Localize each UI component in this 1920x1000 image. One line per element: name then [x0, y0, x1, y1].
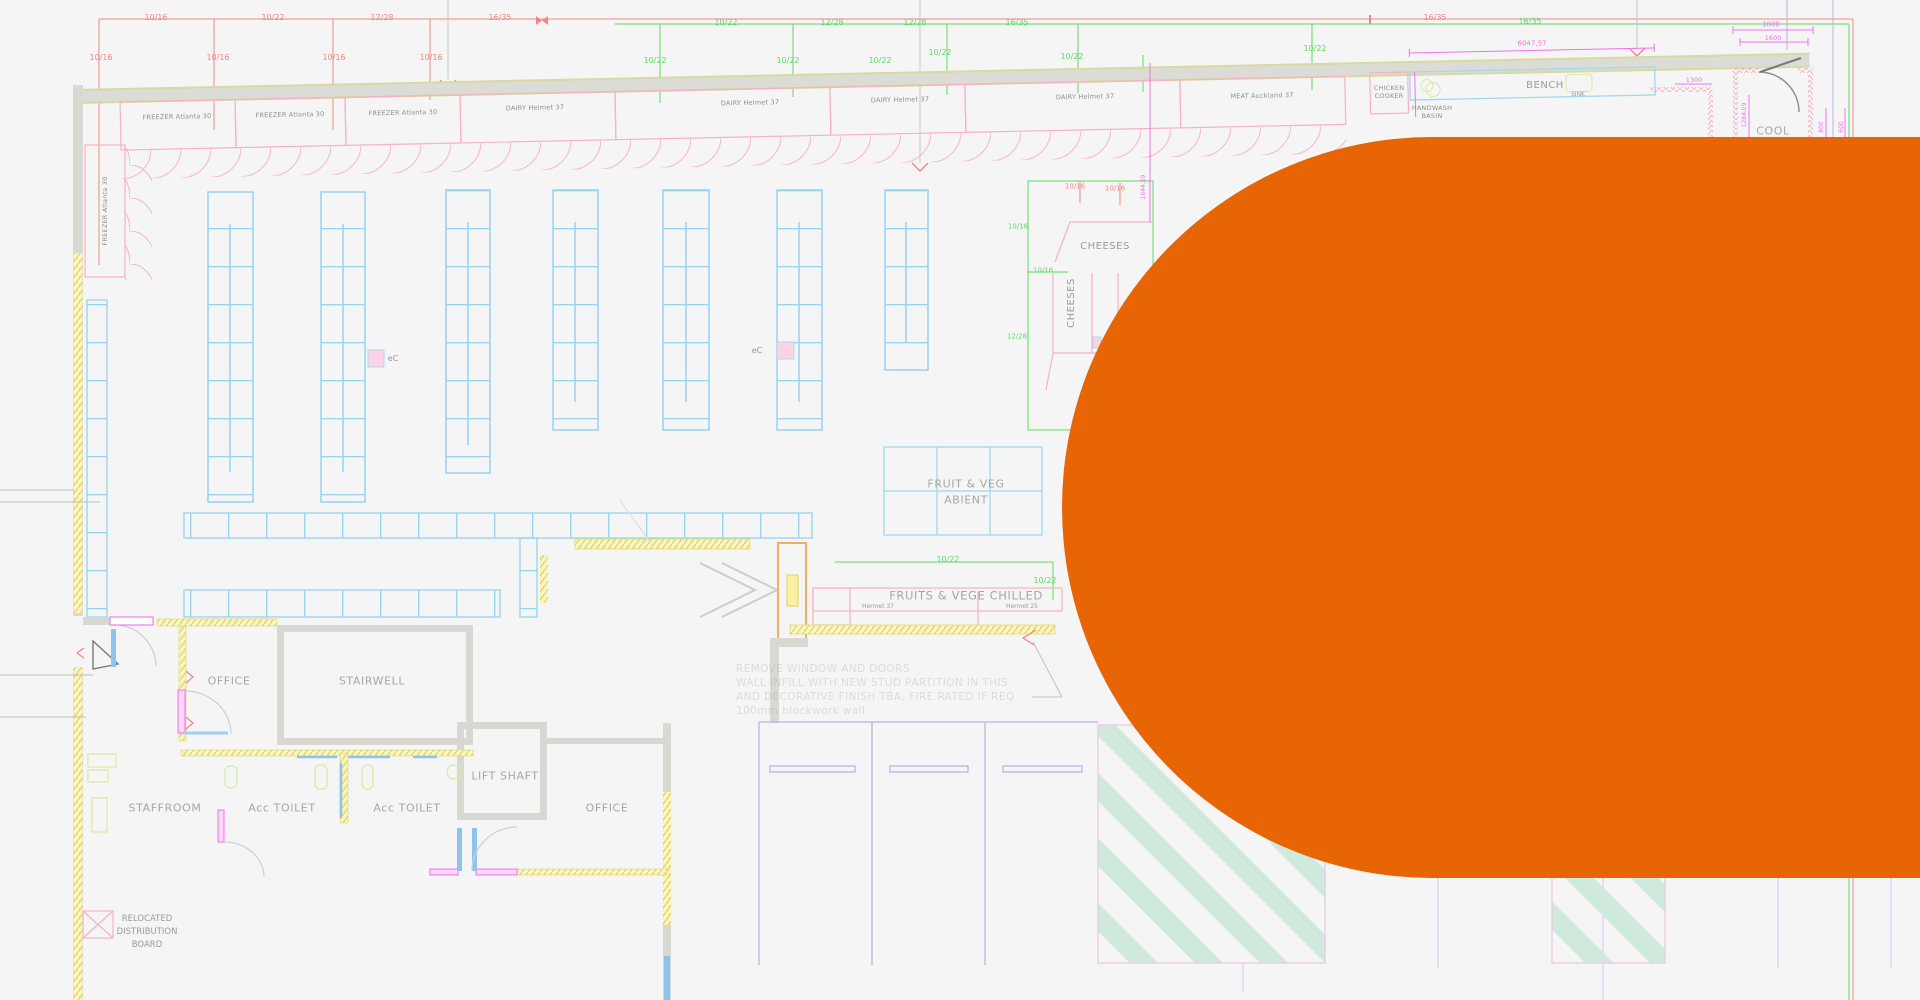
fruit-veg-table [884, 447, 1042, 535]
case-label: DAIRY Helmet 37 [1056, 93, 1114, 101]
handwash-label: BASIN [1422, 113, 1443, 120]
distribution-board-label: RELOCATED [122, 915, 173, 924]
left-wall-group [0, 85, 156, 1000]
dim-label: 12/28 [903, 19, 926, 27]
case-label: MEAT Auckland 37 [1230, 92, 1293, 100]
shelf-rows [184, 513, 812, 617]
dim-label: 10/16 [322, 54, 345, 62]
case-label: DAIRY Helmet 37 [871, 96, 929, 104]
case-label: FREEZER Atlanta 30 [143, 113, 212, 121]
dim-label: 10/16 [206, 54, 229, 62]
dim-label: 1284,09 [1742, 103, 1748, 128]
dim-label: 10/16 [1105, 186, 1125, 193]
chicken-cooker-label: COOKER [1375, 93, 1404, 100]
case-label: FREEZER Atlanta 30 [369, 109, 438, 117]
dim-label: 10/22 [714, 19, 737, 27]
dim-label: 600 [1839, 121, 1845, 132]
dim-label: 10/16 [419, 54, 442, 62]
dim-label: 12/28 [370, 14, 393, 22]
distribution-board-symbol [83, 911, 113, 938]
dim-label: 10/22 [868, 57, 891, 65]
bench-label: BENCH [1526, 81, 1564, 91]
dim-label: 12/28 [820, 19, 843, 27]
dim-label: 800 [1819, 121, 1825, 132]
ec-marker-label: eC [752, 347, 763, 355]
ec-marker-label: eC [388, 355, 399, 363]
cheeses-label-vertical: CHEESES [1067, 278, 1077, 328]
dim-label: 10/22 [1060, 53, 1083, 61]
chilled-label: FRUITS & VEGE CHILLED [889, 590, 1043, 602]
ec-marker-square [777, 342, 794, 359]
left-wall-shelving [87, 300, 107, 617]
annotation-note: REMOVE WINDOW AND DOORS [736, 663, 910, 675]
dim-label: 10/22 [936, 556, 959, 564]
dim-label: 10/16 [1033, 268, 1053, 275]
room-label-toilet-left: Acc TOILET [248, 803, 315, 814]
dim-label: 16/35 [1423, 14, 1446, 22]
dim-label: 1300 [1686, 77, 1703, 84]
bench-dim: 6047,57 [1518, 41, 1547, 48]
room-label-office-left: OFFICE [208, 676, 251, 687]
hatched-zone-small [1552, 872, 1665, 963]
left-freezer-label: FREEZER Atlanta 30 [102, 177, 109, 246]
case-label: DAIRY Helmet 37 [506, 104, 564, 112]
sink-label: SINK [1571, 92, 1585, 98]
room-label-toilet-right: Acc TOILET [373, 803, 440, 814]
dim-label: 10/22 [261, 14, 284, 22]
room-label-lift-shaft: LIFT SHAFT [471, 771, 538, 782]
dim-label: 10/16 [144, 14, 167, 22]
room-label-stairwell: STAIRWELL [339, 676, 405, 687]
ec-marker-square [368, 350, 384, 367]
sanitary-fixtures [88, 754, 461, 832]
chilled-sub-label: Hermet 37 [862, 604, 894, 610]
dim-label: 1644,59 [1141, 175, 1147, 200]
annotation-note: 100mm blockwork wall [736, 705, 865, 717]
fruit-veg-label: FRUIT & VEG [927, 479, 1004, 490]
dim-label: 10/22 [643, 57, 666, 65]
checkout-lanes [759, 722, 1098, 965]
chicken-cooker-label: CHICKEN [1374, 85, 1405, 92]
annotation-note: WALL INFILL WITH NEW STUD PARTITION IN T… [736, 677, 1008, 689]
dim-label: 1800 [1762, 22, 1780, 29]
dim-label: 16/35 [1005, 19, 1028, 27]
cool-room-label: COOL [1756, 126, 1790, 137]
case-door-arcs [121, 124, 1346, 179]
fruit-veg-label: ABIENT [944, 495, 988, 506]
distribution-board-label: DISTRIBUTION [117, 928, 178, 937]
floorplan-canvas[interactable]: 10/16 10/22 12/28 16/35 16/35 10/16 10/1… [0, 0, 1920, 1000]
handwash-label: HANDWASH [1412, 105, 1452, 112]
dim-label: 12/28 [1007, 334, 1027, 341]
chilled-sub-label: Hermet 25 [1006, 604, 1038, 610]
dim-label: 10/22 [1033, 577, 1056, 585]
gondola-racks [208, 190, 928, 502]
dim-label: 10/16 [1008, 224, 1028, 231]
annotation-note: AND DECORATIVE FINISH TBA, FIRE RATED IF… [736, 691, 1015, 703]
case-label: FREEZER Atlanta 30 [256, 111, 325, 119]
room-walls [83, 617, 666, 820]
cheeses-label: CHEESES [1080, 242, 1130, 252]
room-label-office-right: OFFICE [586, 803, 629, 814]
distribution-board-label: BOARD [132, 941, 163, 950]
dim-label: 10/22 [1303, 45, 1326, 53]
dim-label: 16/35 [488, 14, 511, 22]
dim-label: 1600 [1765, 35, 1782, 42]
orange-overlay-blob [1062, 137, 1920, 878]
dim-label: 10/22 [928, 49, 951, 57]
dim-label: 10/16 [89, 54, 112, 62]
dim-label: 10/16 [1065, 184, 1085, 191]
dim-label: 16/35 [1518, 18, 1541, 26]
case-label: DAIRY Helmet 37 [721, 99, 779, 107]
room-label-staffroom: STAFFROOM [129, 803, 202, 814]
dim-label: 10/22 [776, 57, 799, 65]
